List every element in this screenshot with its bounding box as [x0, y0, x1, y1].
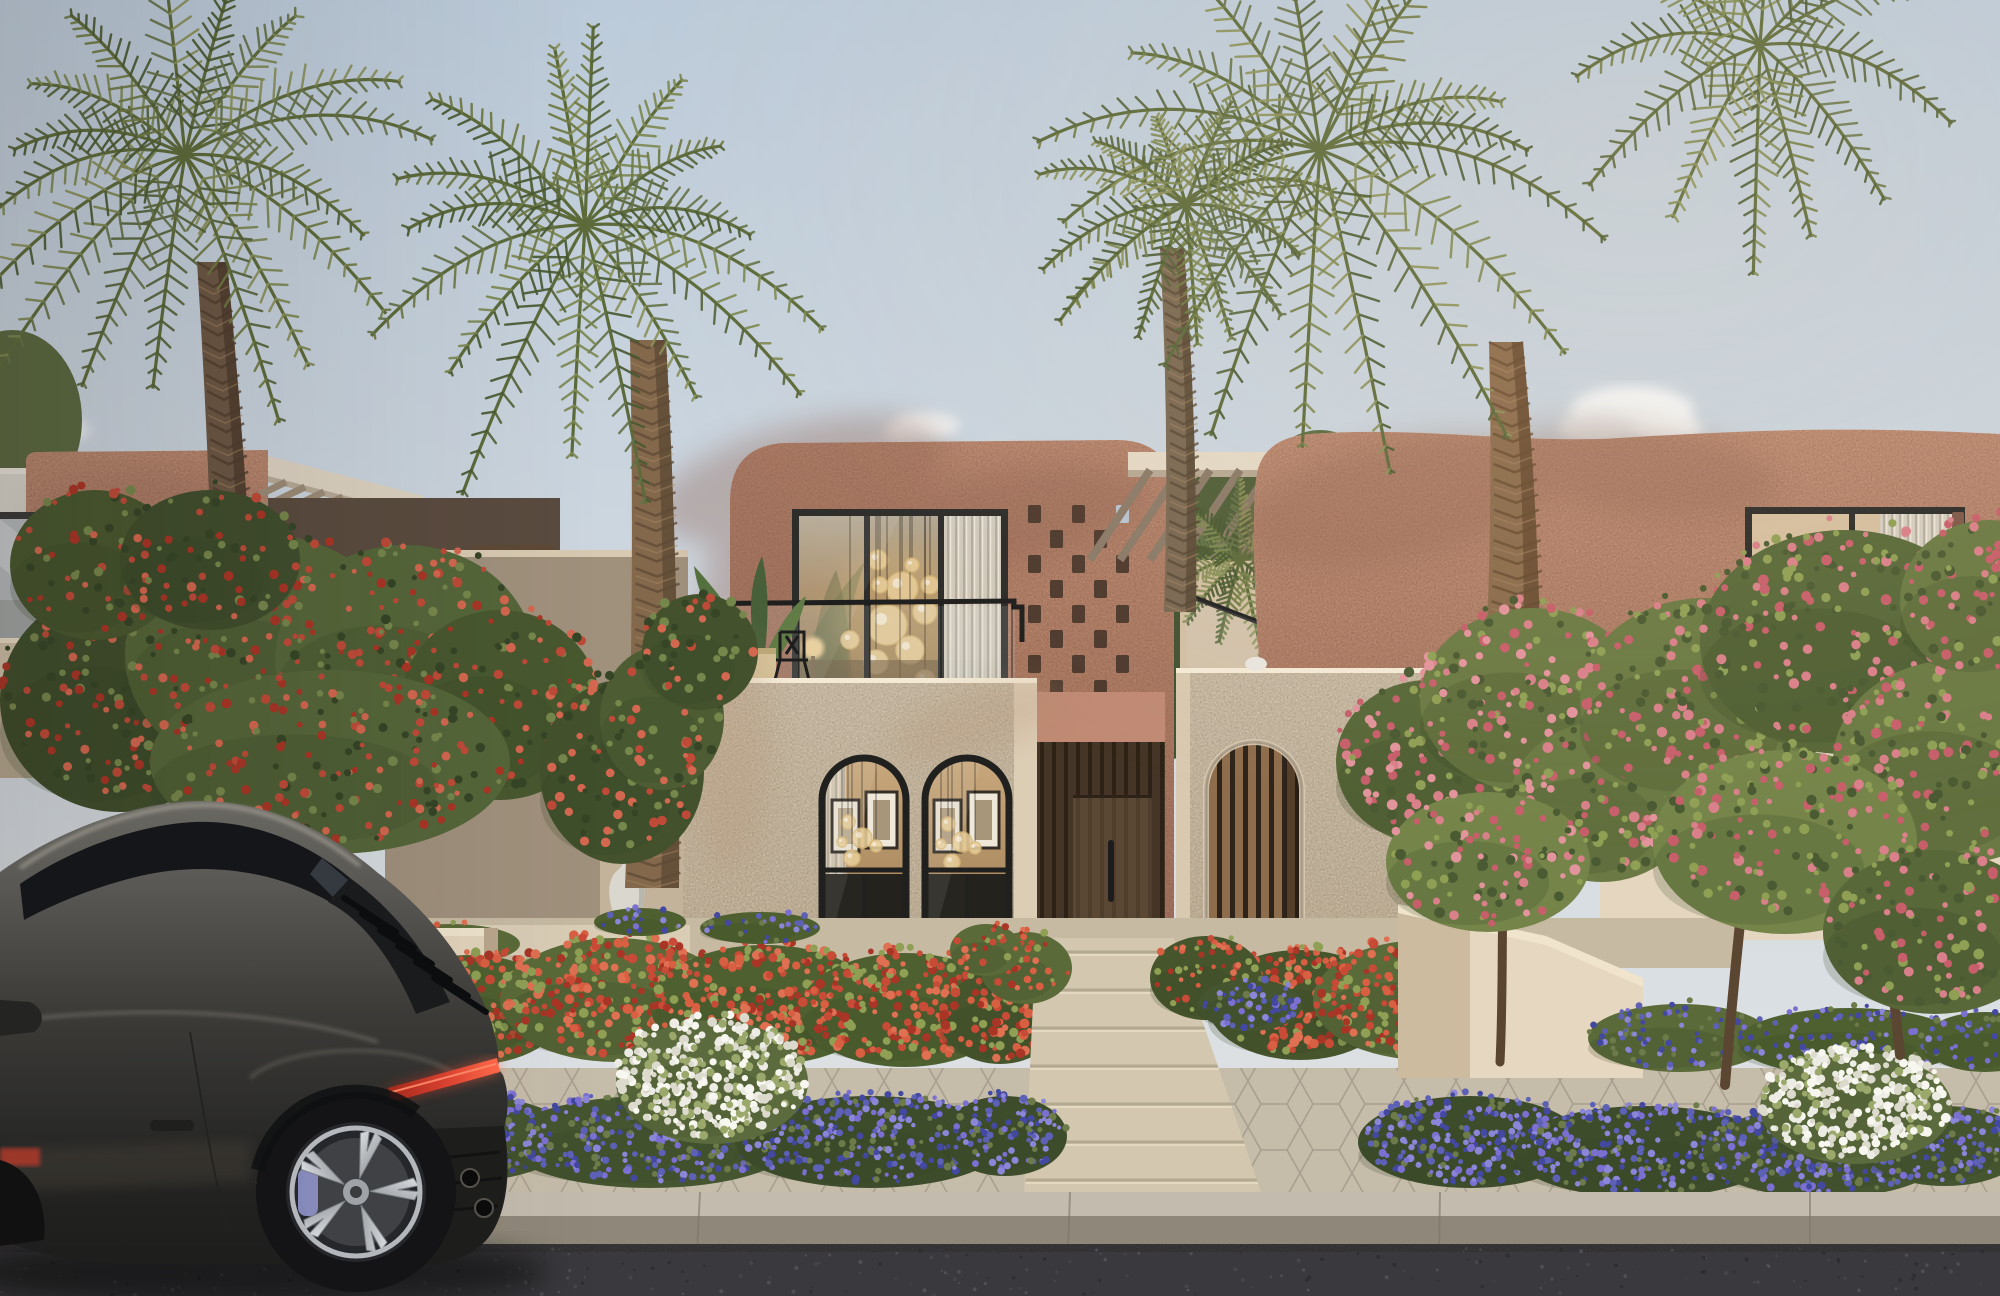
scene-canvas — [0, 0, 2000, 1296]
arched-window-left — [822, 756, 906, 942]
exhaust-tip — [461, 1169, 479, 1187]
exhaust-tip — [475, 1199, 493, 1217]
arched-window-right — [925, 756, 1009, 942]
door-handle-car — [150, 1120, 194, 1131]
rear-wheel — [256, 1092, 456, 1292]
door-handle — [1108, 840, 1114, 902]
entry-recess — [1037, 692, 1165, 942]
rendered-scene — [0, 0, 2000, 1296]
arched-slat-screen — [1206, 742, 1302, 942]
